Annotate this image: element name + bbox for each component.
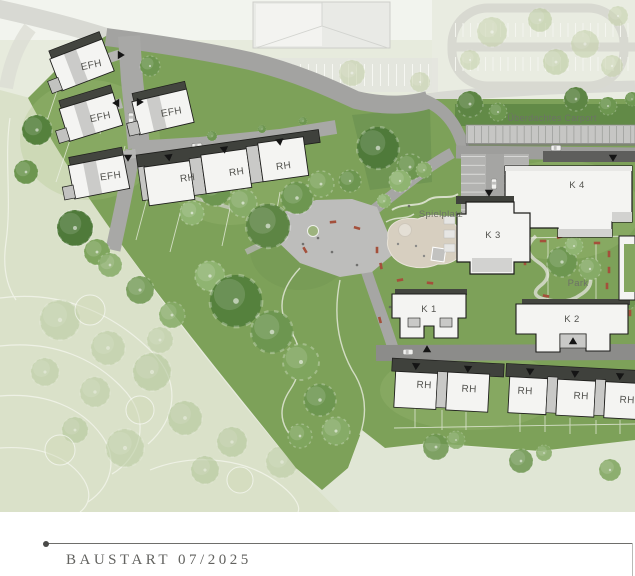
timeline-end-tick	[632, 543, 633, 576]
timeline-dot-icon	[43, 541, 49, 547]
label-rh-bottom-1: RH	[416, 380, 432, 392]
carport-strip	[466, 125, 635, 146]
sidewalk-dark	[543, 151, 635, 162]
building-rh-row-bottom-a	[390, 358, 504, 413]
label-rh-1: RH	[179, 172, 196, 185]
label-spielplatz: Spielplatz	[419, 209, 463, 220]
site-plan-page: EFH EFH EFH EFH RH RH RH Überdachtes Car…	[0, 0, 635, 576]
milestone-label: BAUSTART 07/2025	[66, 552, 252, 569]
label-rh-2: RH	[228, 166, 245, 179]
timeline-line	[45, 543, 633, 544]
label-rh-bottom-4: RH	[573, 391, 589, 403]
label-rh-bottom-5: RH	[619, 395, 635, 407]
building-edge-east	[619, 236, 635, 300]
label-k1: K 1	[421, 304, 436, 315]
label-k4: K 4	[569, 180, 584, 191]
label-carport: Überdachtes Carport	[507, 113, 596, 123]
label-rh-bottom-3: RH	[517, 386, 533, 398]
label-k2: K 2	[564, 314, 579, 325]
label-rh-3: RH	[275, 160, 292, 173]
label-rh-bottom-2: RH	[461, 384, 477, 396]
label-k3: K 3	[485, 230, 500, 241]
plaza-planter	[308, 226, 319, 237]
footer: BAUSTART 07/2025	[0, 512, 635, 576]
label-park: Park	[568, 278, 589, 289]
site-plan-drawing: EFH EFH EFH EFH RH RH RH Überdachtes Car…	[0, 0, 635, 512]
